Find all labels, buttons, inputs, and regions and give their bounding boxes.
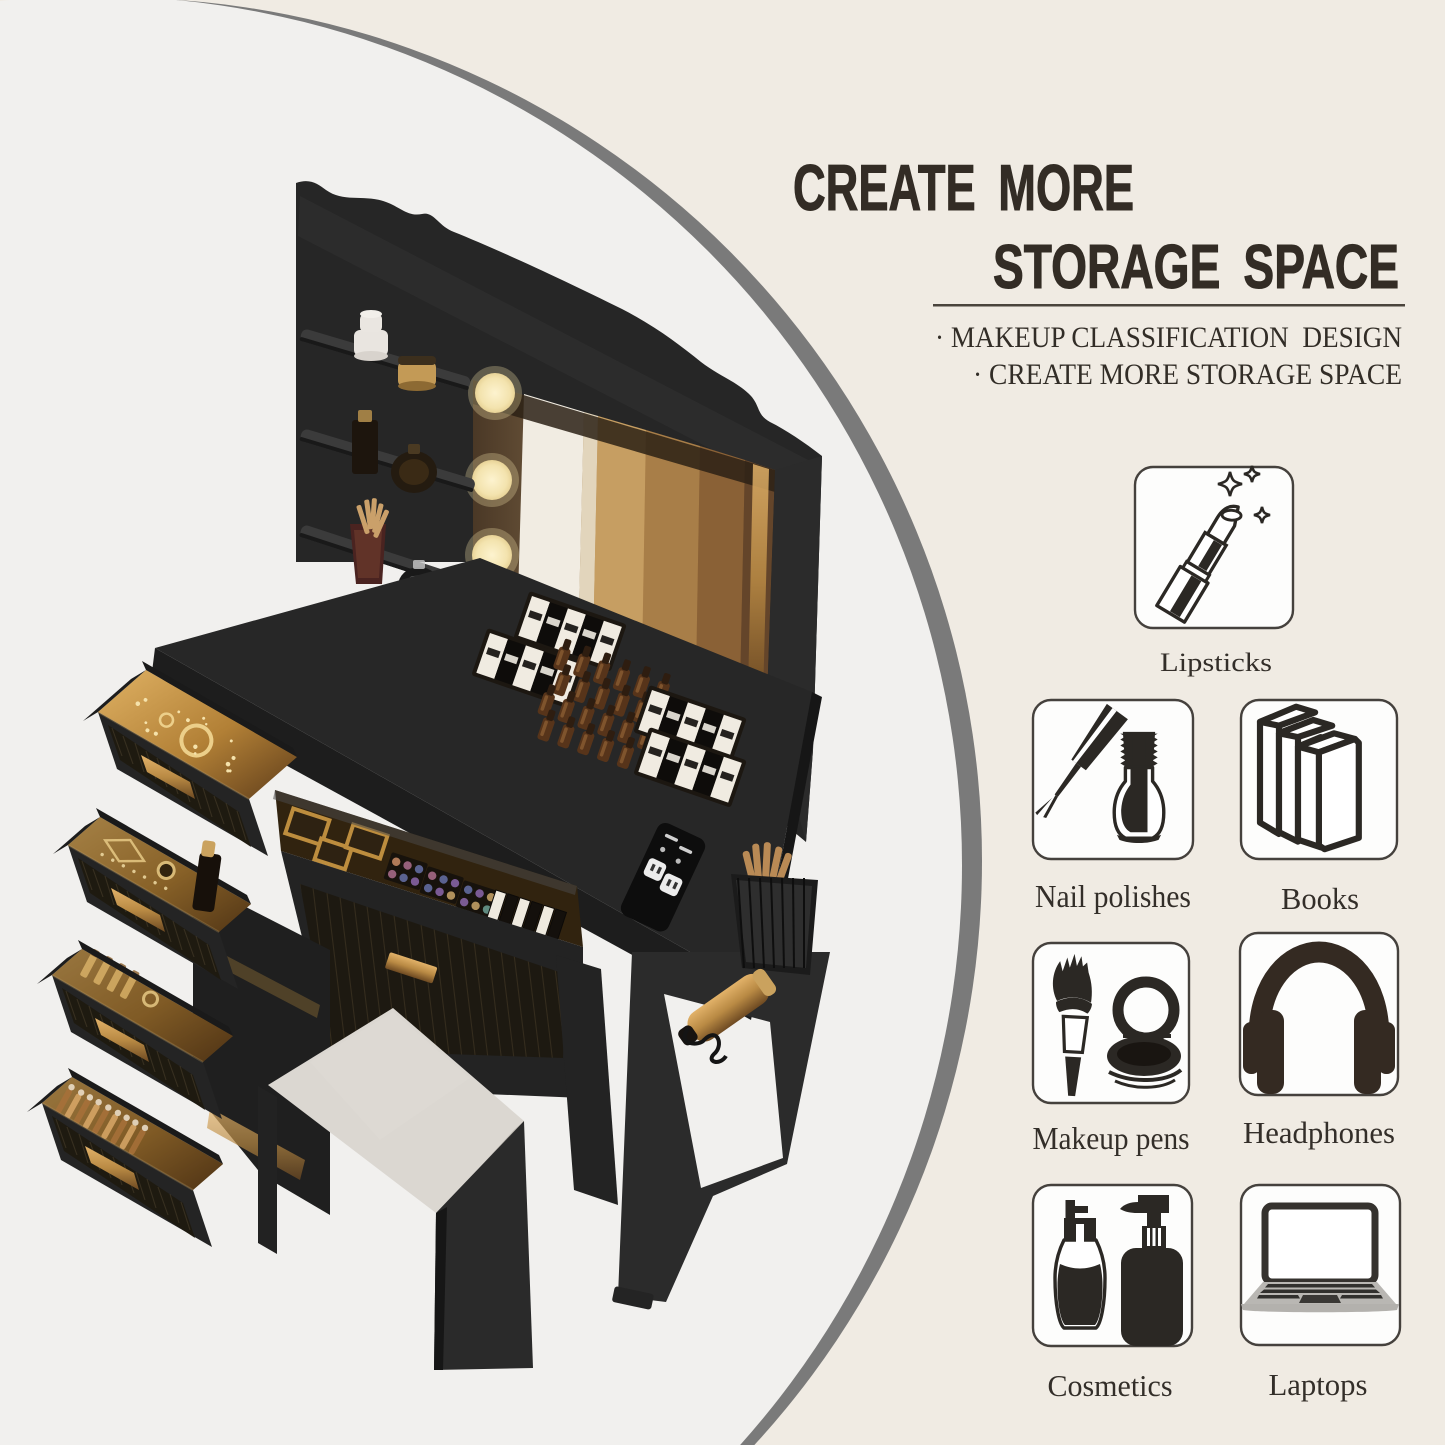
svg-text:CREATE MORE: CREATE MORE bbox=[793, 151, 1134, 224]
svg-text:Books: Books bbox=[1281, 881, 1359, 916]
svg-text:· MAKEUP CLASSIFICATION DESIGN: · MAKEUP CLASSIFICATION DESIGN bbox=[935, 321, 1402, 354]
svg-text:Nail polishes: Nail polishes bbox=[1035, 878, 1191, 914]
svg-text:Cosmetics: Cosmetics bbox=[1048, 1368, 1173, 1403]
svg-text:Makeup pens: Makeup pens bbox=[1033, 1120, 1190, 1156]
svg-text:Lipsticks: Lipsticks bbox=[1160, 648, 1272, 677]
svg-text:· CREATE MORE STORAGE SPACE: · CREATE MORE STORAGE SPACE bbox=[973, 358, 1402, 391]
svg-text:Laptops: Laptops bbox=[1269, 1367, 1368, 1402]
svg-text:Headphones: Headphones bbox=[1243, 1115, 1395, 1150]
svg-text:STORAGE SPACE: STORAGE SPACE bbox=[993, 233, 1399, 302]
